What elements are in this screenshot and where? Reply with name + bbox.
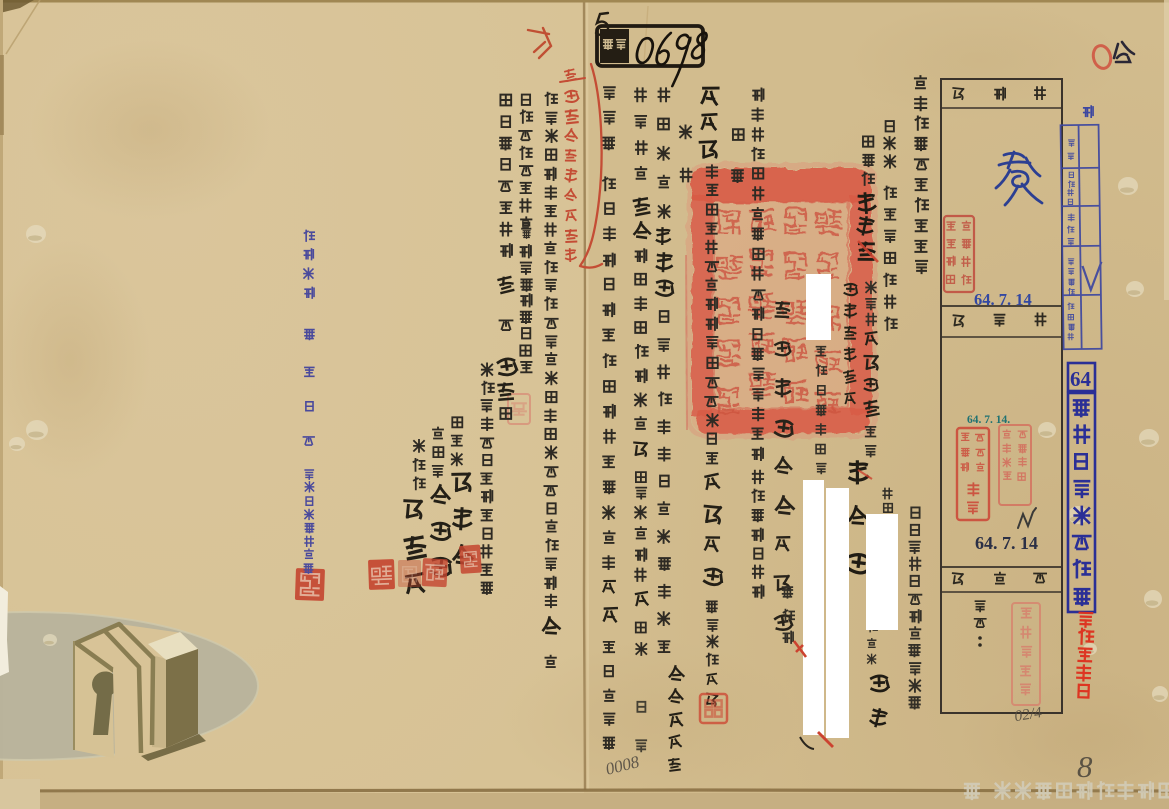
svg-text:64: 64: [1070, 367, 1092, 391]
svg-text:64. 7. 14: 64. 7. 14: [975, 533, 1038, 553]
svg-text:64. 7. 14: 64. 7. 14: [974, 290, 1032, 309]
svg-text:8: 8: [1077, 749, 1093, 784]
